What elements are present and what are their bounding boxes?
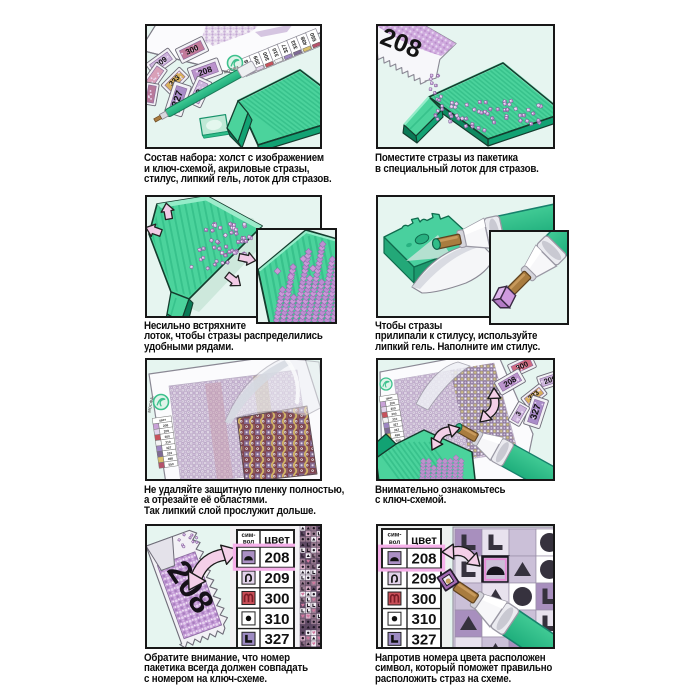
svg-text:310: 310 <box>165 440 171 445</box>
svg-text:209: 209 <box>264 570 289 587</box>
svg-text:327: 327 <box>411 631 436 648</box>
svg-text:333: 333 <box>167 451 173 456</box>
svg-text:327: 327 <box>264 631 289 648</box>
svg-text:498: 498 <box>167 457 173 462</box>
svg-text:208: 208 <box>163 423 169 428</box>
svg-text:310: 310 <box>411 611 436 628</box>
svg-text:310: 310 <box>264 611 289 628</box>
svg-text:209: 209 <box>411 571 436 588</box>
svg-text:300: 300 <box>411 591 436 608</box>
svg-text:550: 550 <box>168 462 174 467</box>
svg-text:327: 327 <box>166 445 172 450</box>
svg-text:209: 209 <box>164 429 170 434</box>
svg-text:300: 300 <box>264 590 289 607</box>
svg-text:сим-: сим- <box>388 532 402 539</box>
svg-text:300: 300 <box>164 434 170 439</box>
svg-text:208: 208 <box>264 550 289 567</box>
svg-text:208: 208 <box>411 551 436 568</box>
